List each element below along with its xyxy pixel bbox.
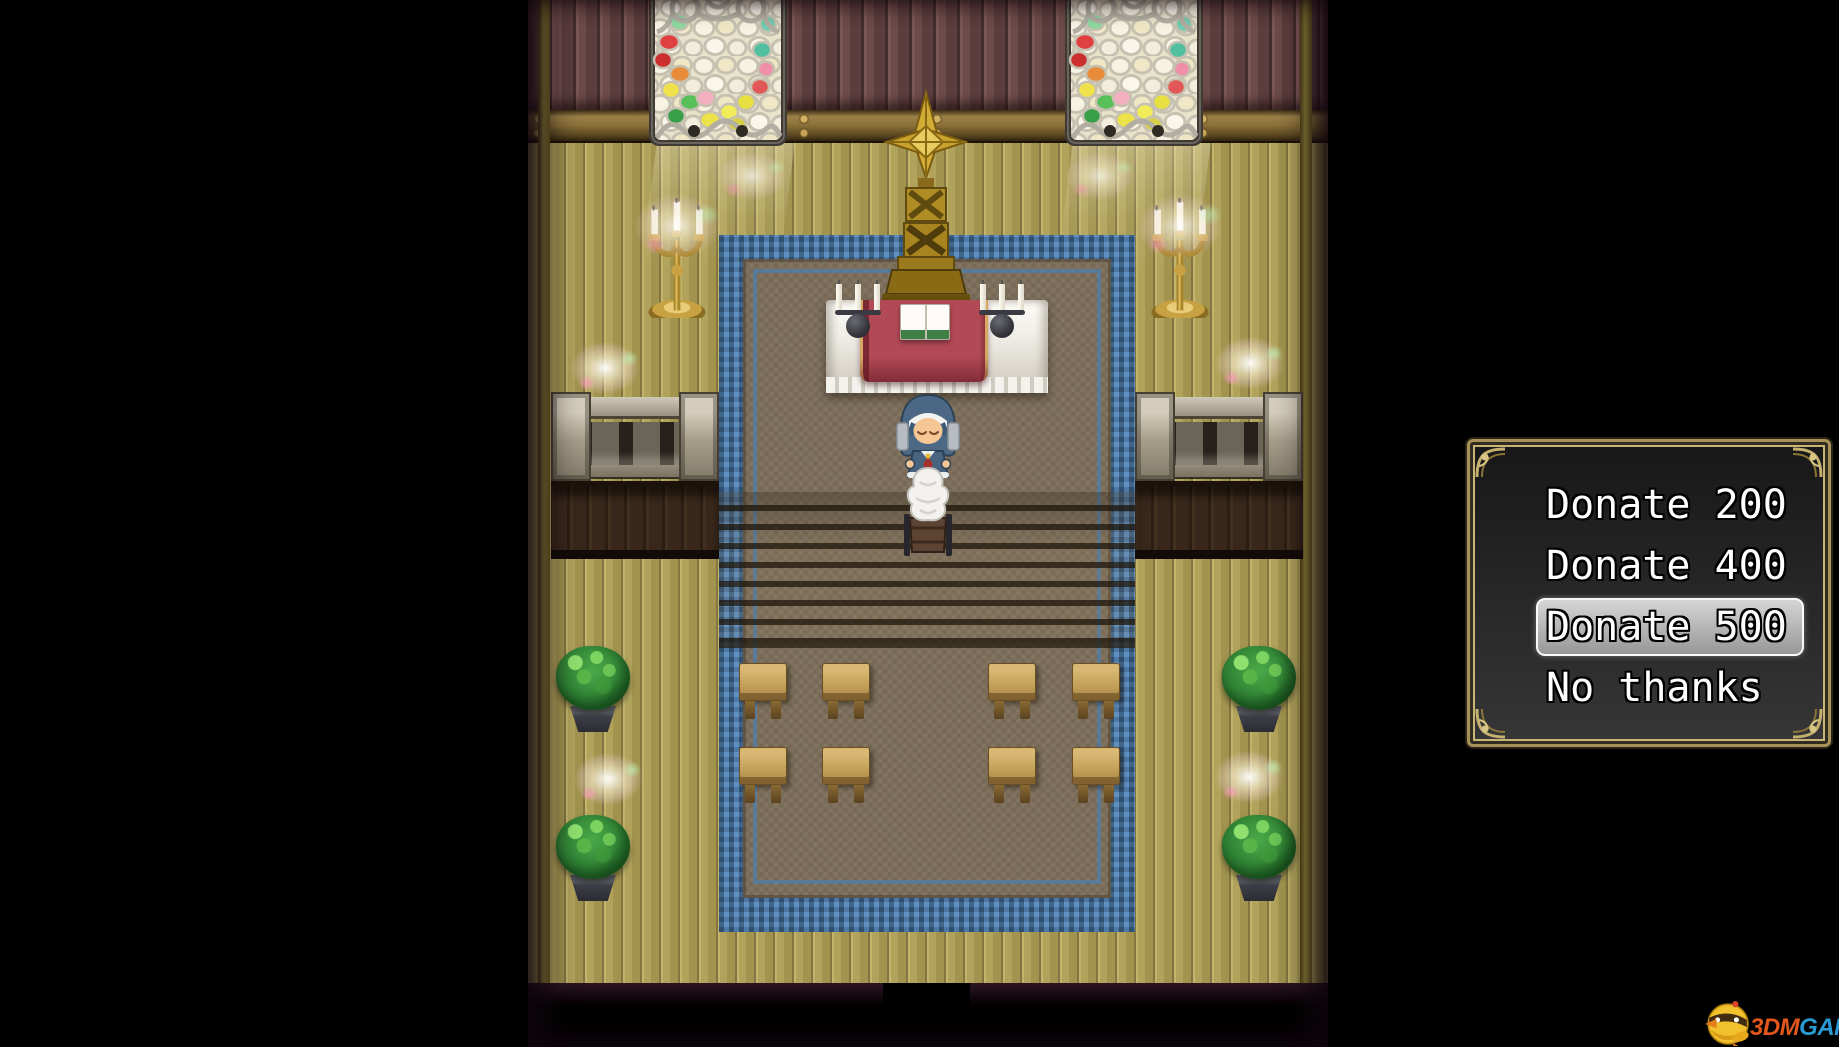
bush	[556, 815, 630, 879]
3dm-bird-icon	[1702, 1000, 1752, 1046]
candelabra-left	[635, 198, 719, 318]
bench	[739, 747, 787, 805]
candle	[855, 284, 861, 310]
choice-window: Donate 200 Donate 400 Donate 500 No than…	[1467, 439, 1831, 747]
bench-top	[739, 663, 787, 701]
choice-item-no-thanks[interactable]: No thanks	[1536, 658, 1804, 719]
bench-leg	[854, 785, 864, 803]
bottom-darkness	[528, 983, 883, 1047]
potted-bush	[556, 646, 630, 732]
altar-candle-set	[976, 278, 1028, 340]
railing-post	[1263, 392, 1303, 481]
bench	[988, 747, 1036, 805]
choice-item-label: Donate 400	[1546, 536, 1787, 597]
bench-leg	[771, 701, 781, 719]
bench	[739, 663, 787, 721]
bench-top	[739, 747, 787, 785]
platform-wall	[1135, 481, 1303, 559]
bush	[1222, 815, 1296, 879]
bench	[822, 747, 870, 805]
open-book	[900, 304, 950, 340]
church-map[interactable]	[528, 0, 1328, 1047]
bench-leg	[745, 785, 755, 803]
bench	[1072, 747, 1120, 805]
bush	[556, 646, 630, 710]
bench-leg	[745, 701, 755, 719]
window-corner-ornament	[1474, 706, 1508, 740]
wall-side-trim	[538, 0, 550, 983]
choice-item-donate-500[interactable]: Donate 500	[1536, 597, 1804, 658]
candle-holder	[846, 314, 870, 338]
platform-wall	[551, 481, 719, 559]
candle	[1018, 284, 1024, 310]
bench-leg	[1020, 785, 1030, 803]
bush	[1222, 646, 1296, 710]
bench-top	[1072, 663, 1120, 701]
bench-top	[822, 747, 870, 785]
candle-holder	[990, 314, 1014, 338]
offering-stand[interactable]	[900, 466, 956, 562]
bench-leg	[828, 701, 838, 719]
window-corner-ornament	[1474, 446, 1508, 480]
bench-leg	[828, 785, 838, 803]
bench-top	[822, 663, 870, 701]
potted-bush	[1222, 815, 1296, 901]
bench	[1072, 663, 1120, 721]
railing-post	[551, 392, 591, 481]
candle	[980, 284, 986, 310]
bench-leg	[994, 785, 1004, 803]
choice-item-label: Donate 500	[1546, 597, 1787, 658]
potted-bush	[556, 815, 630, 901]
railing-post	[679, 392, 719, 481]
bench-leg	[771, 785, 781, 803]
watermark-text: 3DMGAME	[1750, 1014, 1839, 1042]
choice-item-donate-400[interactable]: Donate 400	[1536, 536, 1804, 597]
bench-leg	[994, 701, 1004, 719]
bench-top	[988, 663, 1036, 701]
bench-top	[988, 747, 1036, 785]
choice-item-label: Donate 200	[1546, 475, 1787, 536]
stained-glass-window-left	[649, 0, 787, 146]
candle	[874, 284, 880, 310]
bench	[822, 663, 870, 721]
bench	[988, 663, 1036, 721]
watermark-brand-left: 3DM	[1750, 1014, 1799, 1041]
bench-top	[1072, 747, 1120, 785]
altar-table	[826, 272, 1048, 393]
game-screen: Donate 200 Donate 400 Donate 500 No than…	[0, 0, 1839, 1047]
bench-leg	[1078, 701, 1088, 719]
watermark: 3DMGAME	[1702, 998, 1839, 1047]
stone-railing-left	[551, 392, 719, 567]
bottom-darkness	[970, 983, 1328, 1047]
choice-item-donate-200[interactable]: Donate 200	[1536, 475, 1804, 536]
potted-bush	[1222, 646, 1296, 732]
watermark-brand-right: GAME	[1799, 1014, 1839, 1041]
stone-railing-right	[1135, 392, 1303, 567]
candelabra-right	[1138, 198, 1222, 318]
bench-leg	[854, 701, 864, 719]
choice-item-label: No thanks	[1546, 658, 1763, 719]
bench-leg	[1104, 701, 1114, 719]
candle	[836, 284, 842, 310]
bench-leg	[1020, 701, 1030, 719]
candle	[999, 284, 1005, 310]
railing-post	[1135, 392, 1175, 481]
bench-leg	[1078, 785, 1088, 803]
altar-candle-set	[832, 278, 884, 340]
bench-leg	[1104, 785, 1114, 803]
stained-glass-window-right	[1065, 0, 1203, 146]
